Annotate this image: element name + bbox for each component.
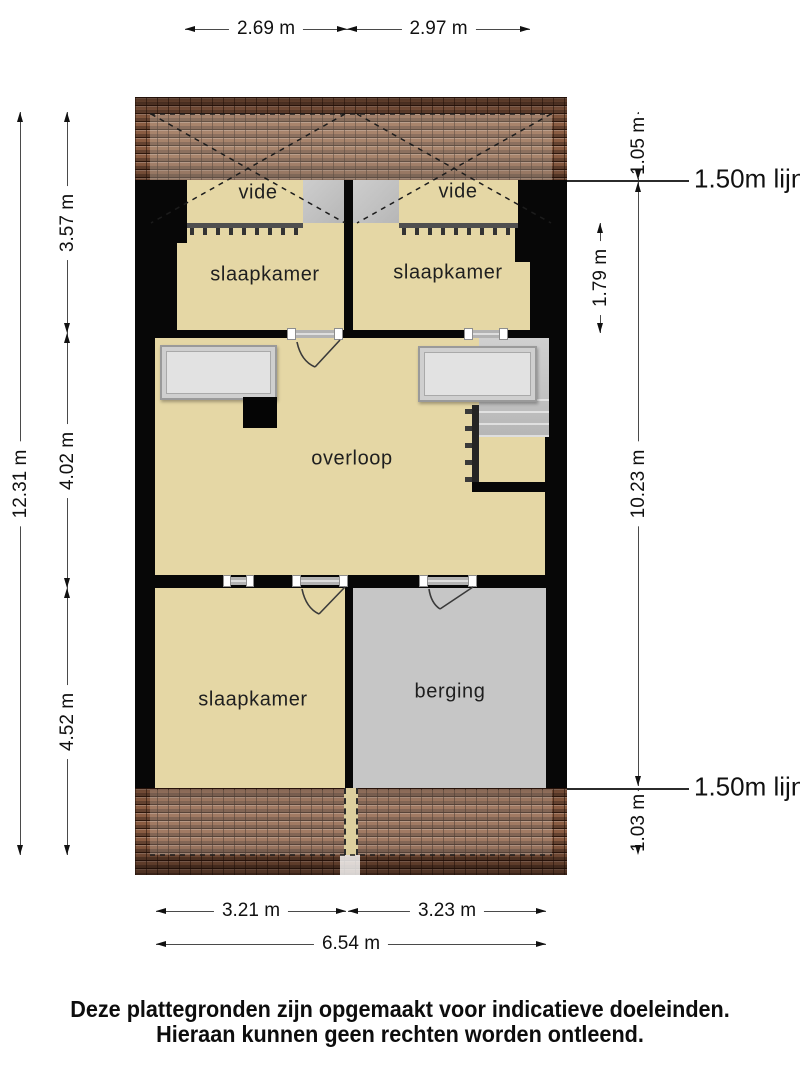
dim-right-room-depth-value: 1.79 m [590, 241, 612, 315]
door-leaf-icon [440, 587, 473, 609]
dim-left-seg3: 4.52 m [67, 588, 68, 855]
dim-top-left: 2.69 m [185, 29, 347, 30]
room-label-slaapkamer-top-right: slaapkamer [393, 262, 502, 285]
dim-top-right: 2.97 m [347, 29, 530, 30]
dim-right-total: 10.23 m [638, 182, 639, 786]
dim-top-left-value: 2.69 m [229, 18, 303, 40]
line-150m-top-label: 1.50m lijn [694, 163, 800, 194]
dim-right-room-depth: 1.79 m [600, 223, 601, 333]
room-label-vide-right: vide [438, 181, 477, 204]
room-label-slaapkamer-bottom: slaapkamer [198, 689, 307, 712]
dim-bottom-total-value: 6.54 m [314, 933, 388, 955]
room-label-overloop: overloop [311, 448, 393, 471]
plan-annotations-overlay [135, 97, 567, 875]
dim-right-bottom-offset-value: 1.03 m [628, 790, 650, 854]
dim-left-seg2-value: 4.02 m [57, 423, 79, 497]
dim-left-seg1: 3.57 m [67, 112, 68, 333]
dim-right-bottom-offset: 1.03 m [638, 790, 639, 855]
dim-right-top-offset-value: 1.05 m [628, 114, 650, 178]
disclaimer-line2: Hieraan kunnen geen rechten worden ontle… [24, 1022, 776, 1047]
dim-left-seg1-value: 3.57 m [57, 185, 79, 259]
door-leaf-icon [319, 587, 345, 614]
dim-bottom-left-value: 3.21 m [214, 900, 288, 922]
line-150m-bottom-label: 1.50m lijn [694, 771, 800, 802]
disclaimer-line1: Deze plattegronden zijn opgemaakt voor i… [24, 997, 776, 1022]
floor-plan: vide vide slaapkamer slaapkamer overloop… [135, 97, 567, 875]
room-label-slaapkamer-top-left: slaapkamer [210, 264, 319, 287]
dim-left-seg2: 4.02 m [67, 333, 68, 588]
dim-left-seg3-value: 4.52 m [57, 684, 79, 758]
line-150m-top [567, 180, 689, 182]
dim-left-total: 12.31 m [20, 112, 21, 855]
disclaimer: Deze plattegronden zijn opgemaakt voor i… [24, 997, 776, 1047]
dim-right-total-value: 10.23 m [628, 442, 650, 527]
dim-bottom-right: 3.23 m [348, 911, 546, 912]
door-swing-icon [297, 342, 315, 367]
dim-bottom-total: 6.54 m [156, 944, 546, 945]
door-leaf-icon [315, 340, 340, 367]
line-150m-bottom [567, 788, 689, 790]
room-label-berging: berging [415, 681, 486, 704]
dim-bottom-right-value: 3.23 m [410, 900, 484, 922]
door-swing-icon [302, 589, 319, 614]
door-swing-icon [429, 589, 440, 609]
dim-right-top-offset: 1.05 m [638, 112, 639, 180]
dim-left-total-value: 12.31 m [10, 441, 32, 526]
dim-top-right-value: 2.97 m [401, 18, 475, 40]
room-label-vide-left: vide [238, 182, 277, 205]
dim-bottom-left: 3.21 m [156, 911, 346, 912]
